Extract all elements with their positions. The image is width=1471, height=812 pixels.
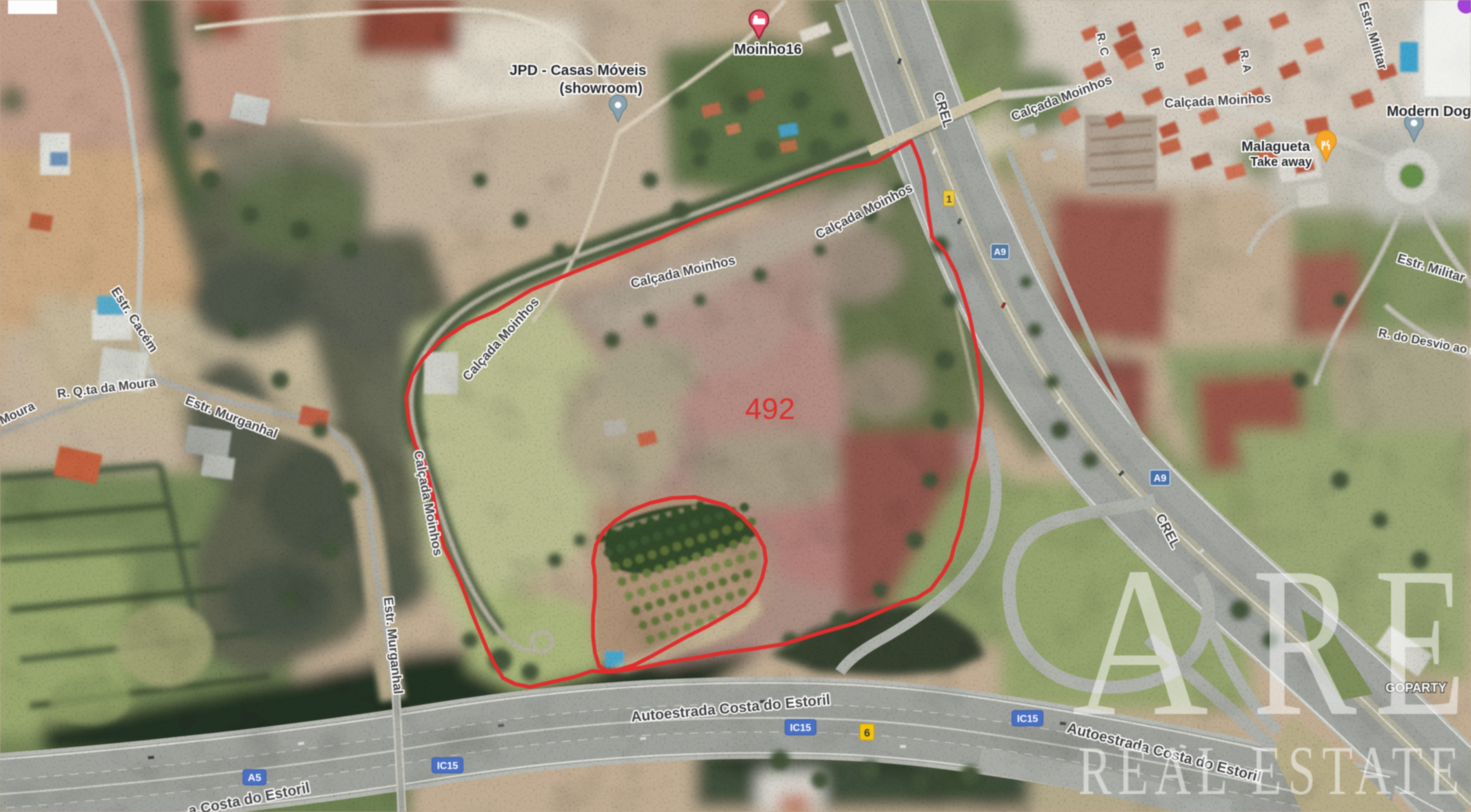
svg-text:IC15: IC15	[1017, 714, 1039, 725]
svg-text:REAL ESTATE: REAL ESTATE	[1078, 733, 1466, 810]
svg-text:Modern Dog: Modern Dog	[1387, 104, 1471, 120]
svg-text:R: R	[1252, 522, 1357, 761]
svg-text:492: 492	[745, 393, 795, 426]
svg-text:A: A	[1072, 523, 1209, 761]
svg-text:E: E	[1374, 524, 1466, 762]
svg-text:Malagueta: Malagueta	[1242, 138, 1311, 154]
svg-text:IC15: IC15	[437, 761, 459, 772]
svg-text:Moinho16: Moinho16	[734, 42, 802, 58]
svg-text:A5: A5	[248, 772, 262, 784]
svg-text:A9: A9	[994, 247, 1006, 258]
svg-text:Take away: Take away	[1250, 155, 1312, 169]
svg-text:6: 6	[864, 728, 870, 740]
svg-text:IC15: IC15	[790, 723, 812, 734]
svg-text:(showroom): (showroom)	[560, 81, 643, 97]
svg-text:A9: A9	[1154, 474, 1167, 485]
svg-text:JPD - Casas Móveis: JPD - Casas Móveis	[509, 63, 646, 79]
svg-text:1: 1	[946, 194, 952, 206]
